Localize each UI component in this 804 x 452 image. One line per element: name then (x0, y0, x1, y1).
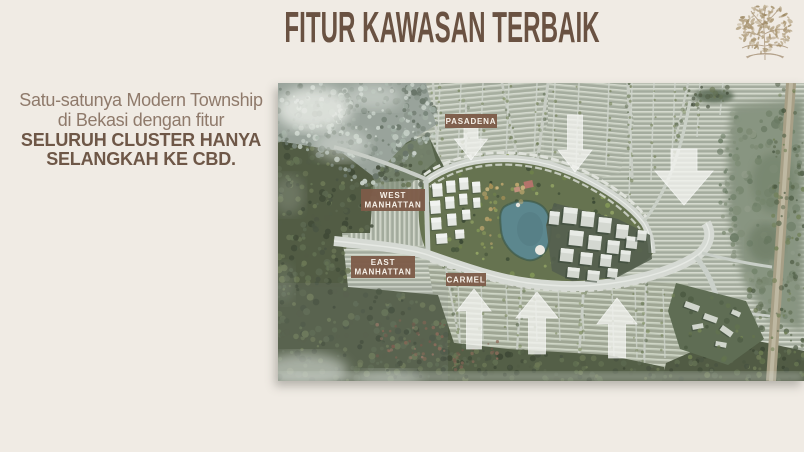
svg-text:MANHATTAN: MANHATTAN (354, 268, 411, 277)
svg-text:PASADENA: PASADENA (446, 117, 497, 126)
svg-text:MANHATTAN: MANHATTAN (364, 201, 421, 210)
svg-text:CARMEL: CARMEL (446, 275, 485, 284)
svg-text:WEST: WEST (380, 191, 406, 200)
svg-text:EAST: EAST (371, 258, 396, 267)
